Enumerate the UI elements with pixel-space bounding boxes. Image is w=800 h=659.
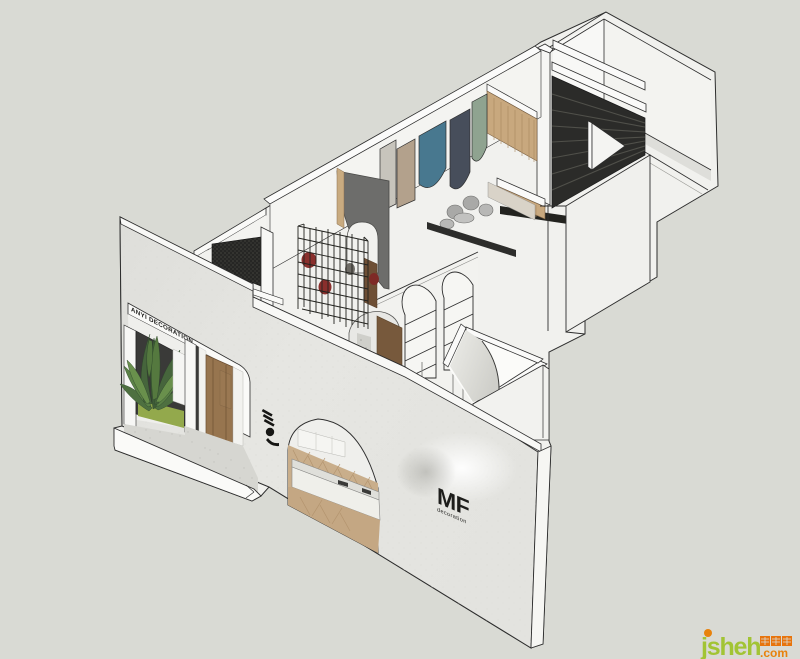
svg-text:jsheh: jsheh <box>700 633 760 659</box>
svg-text:.com: .com <box>760 646 788 659</box>
